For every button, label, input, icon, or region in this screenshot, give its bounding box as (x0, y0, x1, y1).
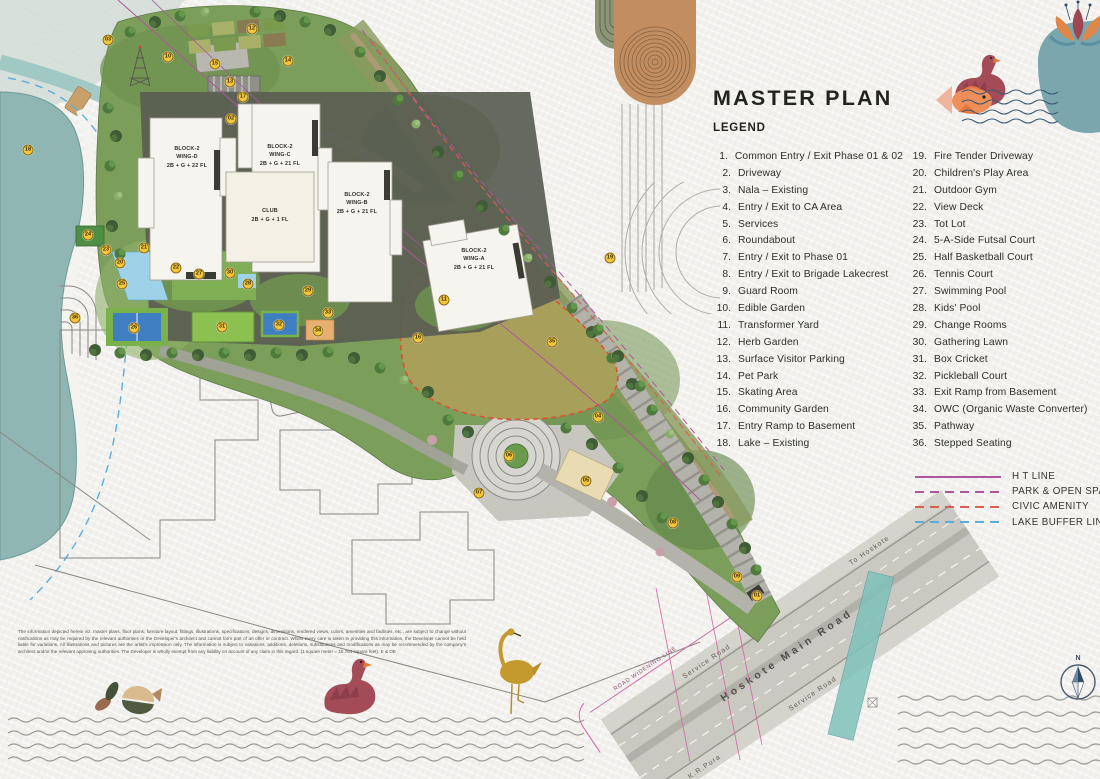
legend-column-2: 19.Fire Tender Driveway20.Children's Pla… (903, 151, 1099, 455)
legend-item: 21.Outdoor Gym (903, 185, 1099, 202)
legend-item: 33.Exit Ramp from Basement (903, 387, 1099, 404)
legend-item: 2.Driveway (707, 168, 903, 185)
wave-lines-right (898, 696, 1100, 764)
legend-item: 14.Pet Park (707, 371, 903, 388)
legend-item: 15.Skating Area (707, 387, 903, 404)
legend-item: 6.Roundabout (707, 235, 903, 252)
legend-item: 20.Children's Play Area (903, 168, 1099, 185)
wing-c-floors: 2B + G + 21 FL (260, 161, 301, 167)
wing-a-floors: 2B + G + 21 FL (454, 265, 495, 271)
legend-line: PARK & OPEN SPACES (915, 484, 1100, 499)
legend-item: 8.Entry / Exit to Brigade Lakecrest (707, 269, 903, 286)
legend-item: 7.Entry / Exit to Phase 01 (707, 252, 903, 269)
wing-c-name: BLOCK-2 (267, 144, 292, 150)
legend-line: LAKE BUFFER LINE (915, 515, 1100, 530)
legend-item: 22.View Deck (903, 202, 1099, 219)
legend-item: 1.Common Entry / Exit Phase 01 & 02 (707, 151, 903, 168)
legend-item: 31.Box Cricket (903, 354, 1099, 371)
legend-item: 25.Half Basketball Court (903, 252, 1099, 269)
legend-item: 5.Services (707, 219, 903, 236)
legend-item: 12.Herb Garden (707, 337, 903, 354)
owc-pad (306, 320, 334, 340)
legend-item: 28.Kids' Pool (903, 303, 1099, 320)
legend-item: 36.Stepped Seating (903, 438, 1099, 455)
legend-line: CIVIC AMENITY (915, 499, 1100, 514)
master-plan-poster: Service Road Hoskote Main Road To Hoskot… (0, 0, 1100, 779)
futsal-court (76, 226, 104, 246)
legend-heading: LEGEND (713, 122, 766, 134)
legend-item: 10.Edible Garden (707, 303, 903, 320)
swan-icon-bottom (324, 659, 375, 714)
flamingo-icon (500, 628, 542, 714)
kids-pool (238, 274, 256, 288)
legend-item: 13.Surface Visitor Parking (707, 354, 903, 371)
legend-item: 24.5-A-Side Futsal Court (903, 235, 1099, 252)
wing-a-wing: WING-A (463, 256, 485, 262)
legend-line: H T LINE (915, 469, 1100, 484)
legend-item: 18.Lake – Existing (707, 438, 903, 455)
compass: N (1061, 655, 1095, 699)
wave-lines-left (8, 718, 584, 761)
wing-a-name: BLOCK-2 (461, 248, 486, 254)
legend-item: 23.Tot Lot (903, 219, 1099, 236)
roundabout (472, 412, 560, 500)
legend-item: 4.Entry / Exit to CA Area (707, 202, 903, 219)
fish-leaves-icon (93, 680, 162, 716)
wing-c-wing: WING-C (269, 152, 291, 158)
pickleball-court (262, 312, 298, 336)
legend-item: 32.Pickleball Court (903, 371, 1099, 388)
legend-item: 27.Swimming Pool (903, 286, 1099, 303)
box-cricket (192, 312, 254, 342)
legend-item: 11.Transformer Yard (707, 320, 903, 337)
top-right-decoration (936, 1, 1100, 134)
disclaimer-text: The information depicted herein viz. mas… (18, 629, 466, 656)
wing-b-wing: WING-B (346, 200, 368, 206)
wing-d-name: BLOCK-2 (174, 146, 199, 152)
tower-wing-b (328, 162, 402, 302)
wing-b-name: BLOCK-2 (344, 192, 369, 198)
legend-item: 19.Fire Tender Driveway (903, 151, 1099, 168)
legend-item: 29.Change Rooms (903, 320, 1099, 337)
club-name: CLUB (262, 208, 278, 214)
wing-b-floors: 2B + G + 21 FL (337, 209, 378, 215)
club-floors: 2B + G + 1 FL (251, 217, 289, 223)
legend-lines: H T LINEPARK & OPEN SPACESCIVIC AMENITYL… (915, 469, 1100, 530)
checkbox-glyph (868, 698, 877, 707)
legend-item: 9.Guard Room (707, 286, 903, 303)
compass-north-label: N (1075, 655, 1080, 662)
legend-item: 34.OWC (Organic Waste Converter) (903, 404, 1099, 421)
tower-wing-d (138, 118, 236, 280)
page-title: MASTER PLAN (713, 86, 892, 111)
legend-item: 17.Entry Ramp to Basement (707, 421, 903, 438)
legend-item: 16.Community Garden (707, 404, 903, 421)
legend-item: 26.Tennis Court (903, 269, 1099, 286)
wing-d-floors: 2B + G + 22 FL (167, 163, 208, 169)
legend-item: 30.Gathering Lawn (903, 337, 1099, 354)
legend-column-1: 1.Common Entry / Exit Phase 01 & 022.Dri… (707, 151, 903, 455)
legend-item: 3.Nala – Existing (707, 185, 903, 202)
wing-d-wing: WING-D (176, 154, 198, 160)
legend-item: 35.Pathway (903, 421, 1099, 438)
